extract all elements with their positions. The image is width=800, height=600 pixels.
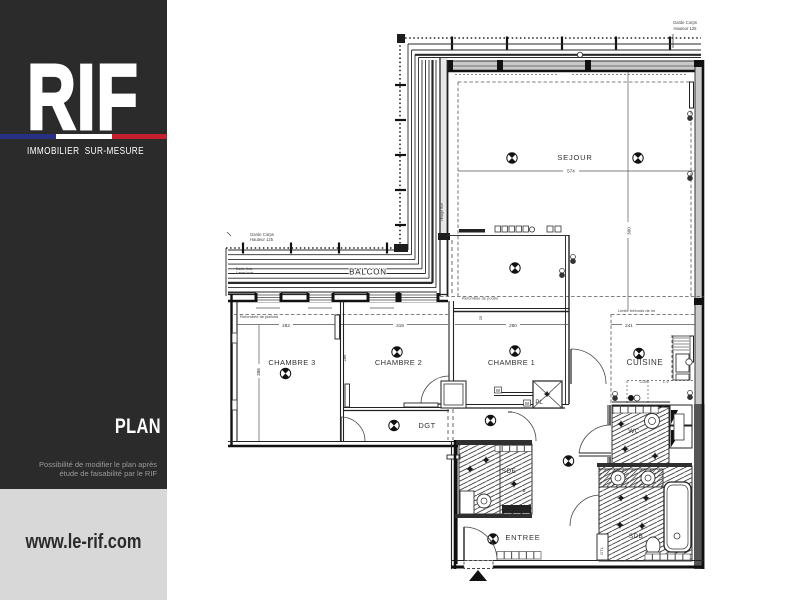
svg-text:280: 280 <box>509 323 517 328</box>
svg-text:Hauteur 125: Hauteur 125 <box>673 26 697 31</box>
svg-text:286: 286 <box>342 354 347 362</box>
svg-text:241: 241 <box>625 323 633 328</box>
svg-text:CHAMBRE 2: CHAMBRE 2 <box>375 358 422 367</box>
svg-text:ø: ø <box>522 488 525 494</box>
svg-text:SDE: SDE <box>502 468 517 475</box>
svg-text:CHAMBRE 3: CHAMBRE 3 <box>268 358 315 367</box>
svg-text:SEJOUR: SEJOUR <box>557 153 592 162</box>
svg-text:PL: PL <box>535 400 543 406</box>
svg-text:300: 300 <box>627 227 632 235</box>
svg-text:vitrage fixe: vitrage fixe <box>440 203 444 221</box>
svg-text:Limite tréfonds de lot: Limite tréfonds de lot <box>618 308 656 313</box>
svg-text:25: 25 <box>478 315 483 320</box>
svg-text:CUISINE: CUISINE <box>627 358 664 367</box>
svg-text:Garde Corps: Garde Corps <box>673 20 697 25</box>
svg-text:Hauteur 125: Hauteur 125 <box>250 237 274 242</box>
svg-text:SDB: SDB <box>629 533 643 540</box>
svg-text:Retombée de plafond: Retombée de plafond <box>240 314 278 319</box>
svg-text:283: 283 <box>282 323 290 328</box>
svg-text:CHAMBRE 1: CHAMBRE 1 <box>488 358 535 367</box>
svg-text:ENTREE: ENTREE <box>505 533 540 542</box>
svg-text:BALCON: BALCON <box>349 268 387 277</box>
svg-text:GTL: GTL <box>599 546 604 555</box>
svg-text:Lame bois: Lame bois <box>236 271 254 275</box>
svg-text:386: 386 <box>256 368 261 376</box>
svg-text:WC: WC <box>628 428 639 435</box>
svg-text:DGT: DGT <box>418 421 435 430</box>
svg-text:574: 574 <box>567 169 575 174</box>
svg-text:Retombée de poutre: Retombée de poutre <box>462 296 499 301</box>
svg-text:319: 319 <box>396 323 404 328</box>
